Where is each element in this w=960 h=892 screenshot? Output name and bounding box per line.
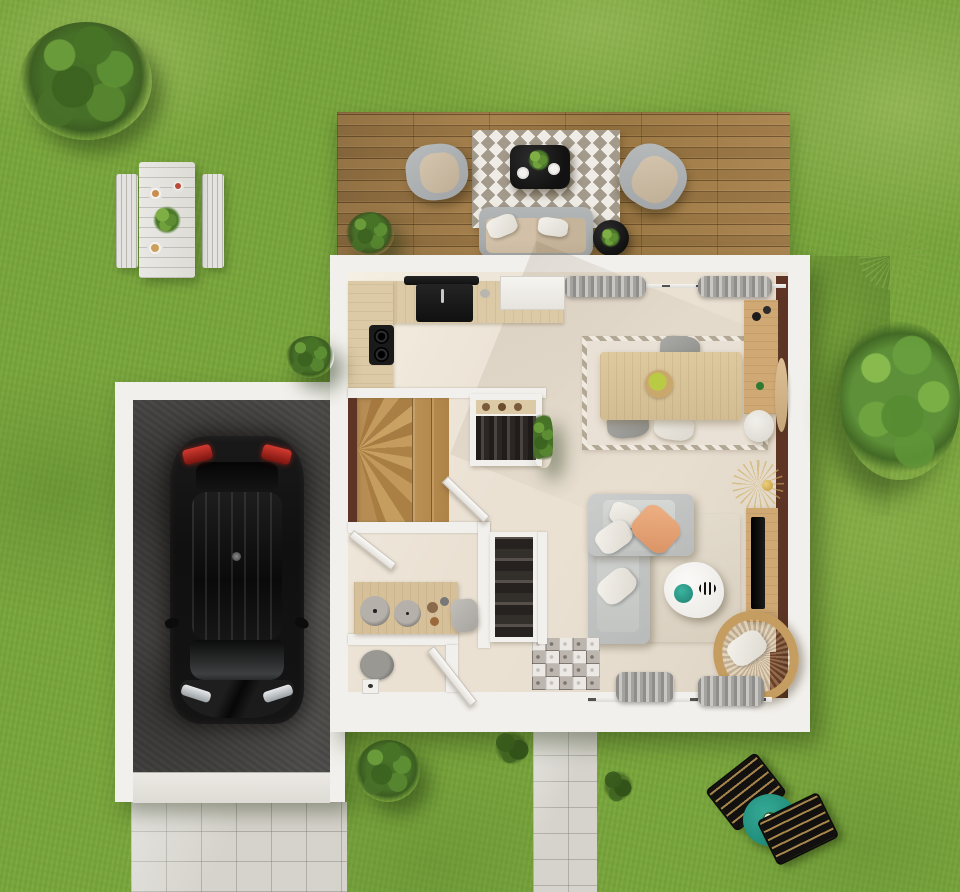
kitchen-faucet (441, 289, 444, 303)
deck-plate (548, 163, 560, 175)
picnic-bench-left (116, 174, 138, 268)
accessory-bowl (440, 597, 449, 606)
picnic-plate (148, 186, 163, 201)
sideboard (744, 300, 778, 414)
bathroom-stool (450, 598, 480, 633)
picnic-bench-right (202, 174, 224, 268)
staircase (357, 398, 449, 526)
tv (751, 517, 765, 609)
car-rear-window (196, 462, 278, 490)
wardrobe-clothes (495, 537, 533, 637)
floor-plan-render (0, 0, 960, 892)
toilet-cistern (362, 679, 379, 694)
walkway (533, 730, 597, 892)
curtain-top-right (698, 276, 772, 297)
round-pouf (744, 410, 774, 442)
driveway (131, 802, 347, 892)
accessory-bowl (427, 602, 438, 613)
bush-left-of-house (286, 336, 334, 378)
tree-right (840, 320, 960, 480)
striped-dish (699, 582, 716, 595)
accent-wall-stairs (348, 398, 357, 528)
garage-door-threshold (133, 772, 330, 803)
burner (374, 347, 389, 362)
car (170, 436, 304, 724)
wall-wc-top (348, 634, 458, 645)
bush-top-left (20, 22, 152, 140)
teal-plate (674, 584, 693, 603)
entry-tile-floor (532, 638, 600, 690)
curtain-bottom-right (698, 676, 764, 706)
climbing-plant (533, 412, 553, 468)
curtain-top-left (564, 276, 646, 297)
shelf-box (514, 403, 522, 411)
car-windshield (190, 640, 284, 680)
grass-tuft (602, 766, 634, 806)
sideboard-plant (756, 382, 764, 390)
burner (374, 329, 389, 344)
fruit-bowl (645, 370, 673, 398)
sideboard-decor (752, 312, 761, 321)
wall-bathroom-right (478, 522, 490, 648)
kitchen-range-sink (416, 284, 473, 322)
deck-plate (517, 167, 529, 179)
car-roof-reflection (232, 552, 241, 561)
wall-bathroom-top (348, 522, 490, 533)
standing-mirror (775, 358, 788, 432)
curtain-bottom-left (616, 672, 674, 702)
picnic-plate (147, 240, 163, 256)
sink-right (394, 600, 421, 627)
floor-lamp (732, 460, 784, 510)
car-roof (192, 492, 282, 640)
deck-potted-plant (346, 212, 394, 256)
ornamental-grass (858, 220, 930, 290)
kitchen-kettle (480, 289, 490, 298)
wall-closet-right (538, 532, 547, 644)
shrub-bottom-center (356, 740, 420, 802)
sideboard-decor (763, 306, 771, 314)
wardrobe-clothes (476, 416, 536, 460)
picnic-centerpiece-plant (152, 203, 182, 237)
picnic-plate (172, 180, 184, 192)
accessory-bowl (430, 617, 439, 626)
toilet-bowl (360, 650, 394, 680)
grass-tuft (490, 730, 534, 766)
shelf-box (498, 403, 506, 411)
shelf-box (482, 403, 490, 411)
sink-left (360, 596, 390, 626)
side-table-plant (599, 226, 622, 249)
kitchen-tall-cabinet (500, 276, 565, 310)
